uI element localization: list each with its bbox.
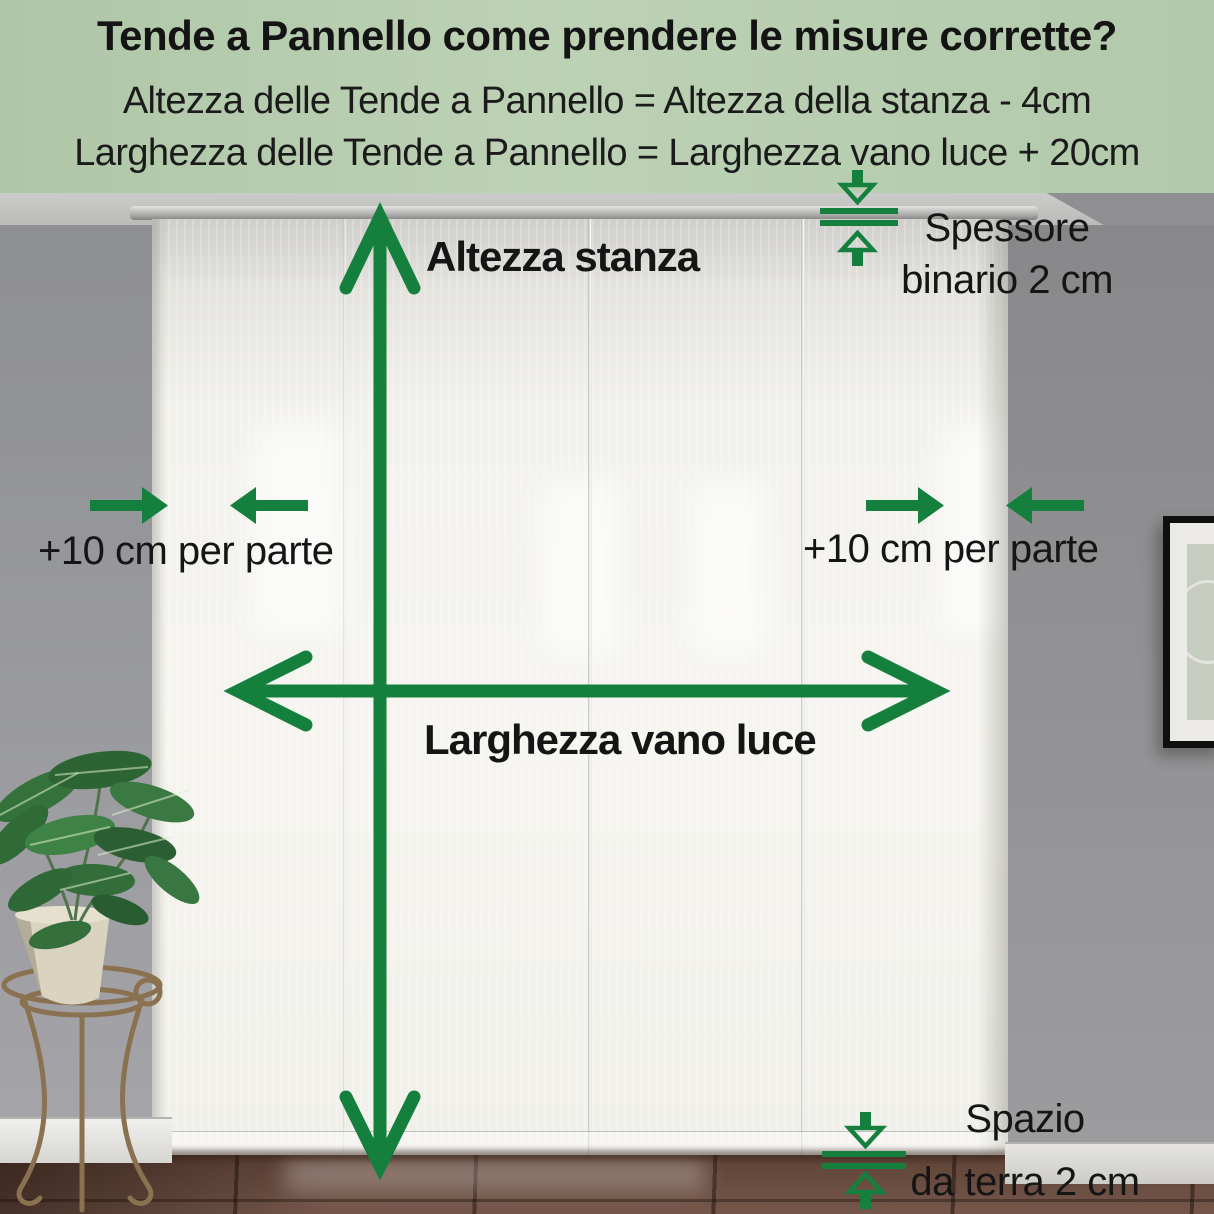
floor-gap-label-line2: da terra 2 cm (895, 1160, 1155, 1205)
floor-gap-label-line1: Spazio (905, 1097, 1145, 1142)
page-title: Tende a Pannello come prendere le misure… (0, 12, 1214, 60)
curtain-floor-shadow (152, 1150, 1008, 1160)
panel-seam (588, 219, 592, 1158)
curtain-right-edge (978, 219, 1008, 1158)
wall-picture-frame (1163, 516, 1214, 748)
plant-pot (15, 906, 111, 1005)
panel-seam (343, 219, 347, 1158)
track-thickness-label-line1: Spessore (882, 206, 1132, 251)
circle-artwork (1187, 580, 1214, 664)
side-margin-left-label: +10 cm per parte (38, 529, 334, 574)
curtain-measuring-infographic: Tende a Pannello come prendere le misure… (0, 0, 1214, 1214)
light-reflection (690, 479, 768, 654)
picture-art (1187, 544, 1214, 720)
side-margin-right-label: +10 cm per parte (803, 527, 1099, 572)
room-height-label: Altezza stanza (426, 233, 699, 281)
panel-curtains (152, 219, 1008, 1158)
plant-decoration (0, 740, 200, 1214)
floor-reflection (285, 1157, 705, 1191)
panel-seam (801, 219, 805, 1158)
height-formula: Altezza delle Tende a Pannello = Altezza… (0, 80, 1214, 123)
header-band: Tende a Pannello come prendere le misure… (0, 0, 1214, 193)
light-reflection (540, 477, 622, 655)
opening-width-label: Larghezza vano luce (424, 716, 816, 764)
track-thickness-label-line2: binario 2 cm (872, 258, 1142, 303)
width-formula: Larghezza delle Tende a Pannello = Largh… (0, 132, 1214, 175)
